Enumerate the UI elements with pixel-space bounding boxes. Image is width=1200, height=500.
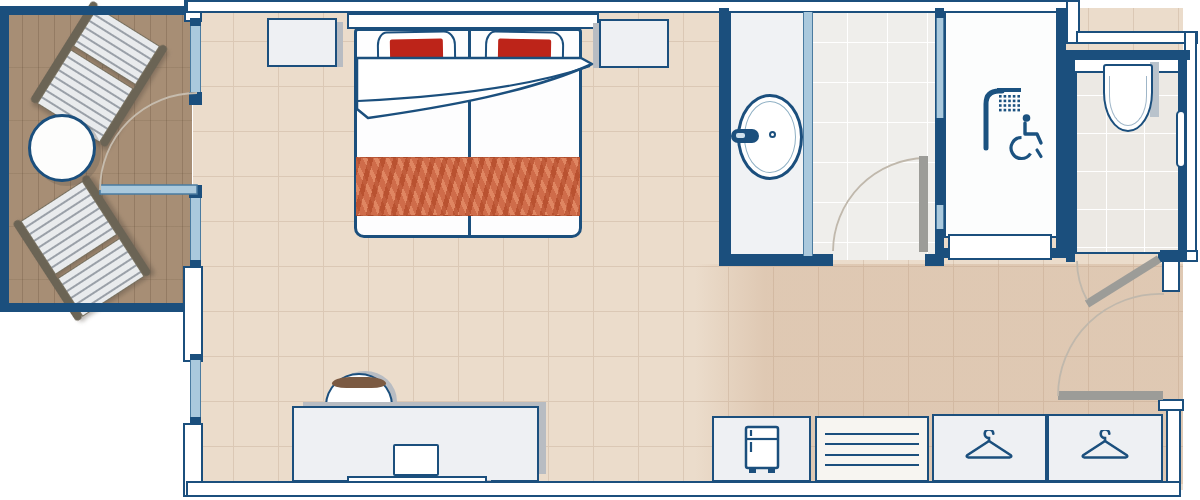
headboard	[347, 13, 599, 29]
round-table	[28, 114, 96, 182]
glass-cap	[190, 417, 201, 424]
shower-threshold	[948, 234, 1052, 260]
desk-chair-backrest	[332, 377, 386, 388]
bathroom-floor	[813, 10, 942, 260]
monitor	[393, 444, 439, 476]
door-jamb	[189, 92, 202, 105]
faucet-handle	[736, 133, 745, 138]
fridge-icon	[742, 424, 782, 476]
pillow-left	[377, 30, 457, 72]
wall-top-main	[186, 0, 1078, 13]
balcony-wall-bottom	[0, 303, 194, 312]
hanger-icon	[963, 430, 1015, 464]
vanity-glass-partition	[803, 12, 813, 256]
hanger-icon	[1079, 430, 1131, 464]
grab-bar	[1176, 110, 1186, 168]
nightstand-left	[267, 18, 337, 67]
slatted-unit	[815, 416, 929, 482]
vanity-wall-left	[719, 8, 729, 260]
toilet-rim	[1109, 76, 1147, 126]
glass-cap	[190, 18, 201, 26]
window-glass-panel	[190, 26, 201, 92]
wall-bottom	[186, 481, 1181, 497]
wc-wall-top	[1066, 50, 1190, 60]
window-glass-panel	[190, 360, 201, 418]
balcony-wall-top	[0, 6, 194, 15]
wc-door-stub-right	[1158, 252, 1187, 262]
window-glass-panel	[190, 198, 201, 260]
vanity-wall-bottom	[719, 254, 833, 266]
slats	[825, 424, 919, 474]
entrance-door-frame-notch	[1162, 260, 1180, 292]
floor-plan	[0, 0, 1200, 500]
balcony-wall-left	[0, 6, 9, 312]
nightstand-right	[599, 19, 669, 68]
door-jamb	[189, 185, 202, 198]
shower-wall-right	[1056, 8, 1066, 252]
shower-room	[944, 10, 1058, 238]
wc-wall-left	[1066, 50, 1075, 262]
shower-glass-strip	[936, 205, 944, 229]
shower-glass-strip	[936, 18, 944, 118]
pillow-right	[485, 30, 565, 72]
wall-top-right	[1076, 31, 1198, 44]
wc-door-stub-left	[1066, 252, 1075, 262]
sink-drain	[769, 131, 776, 138]
glass-cap	[190, 260, 201, 268]
bed-runner	[356, 157, 580, 216]
wall-pier-mid	[183, 266, 203, 362]
